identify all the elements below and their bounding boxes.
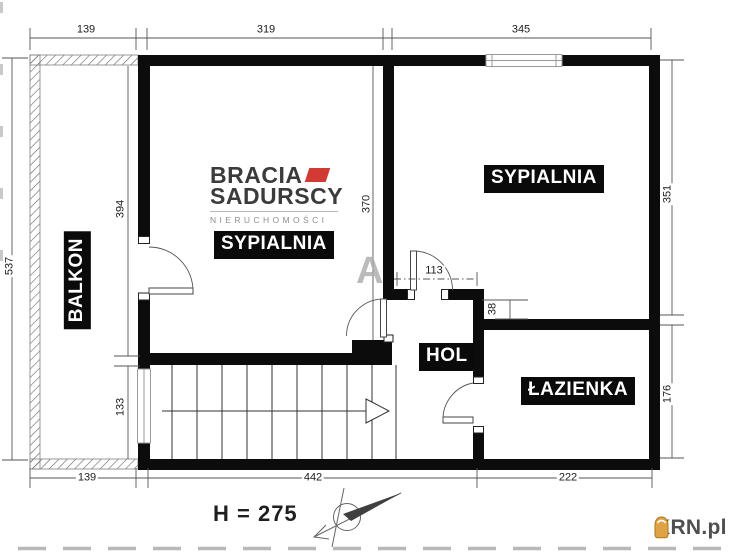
bedroom-window xyxy=(486,55,562,67)
stairs-direction-arrow xyxy=(366,399,389,423)
dim-bottom-bathroom: 222 xyxy=(557,473,579,484)
dim-top-balcony: 139 xyxy=(75,25,97,36)
dimension-lines xyxy=(2,28,684,488)
main-walls xyxy=(138,55,660,470)
dim-left-total: 537 xyxy=(5,255,16,277)
dim-right-bathroom: 176 xyxy=(663,383,674,405)
floorplan: A BALKON SYPIALNIA SYPIALNIA HOL ŁAZIENK… xyxy=(0,0,740,553)
dim-bedroom-depth: 370 xyxy=(362,193,373,215)
dim-wall-offset: 38 xyxy=(488,301,499,317)
dim-top-bedroom-right: 345 xyxy=(510,25,532,36)
agency-name-line2: SADURSCY xyxy=(210,186,338,207)
dim-right-bedroom: 351 xyxy=(663,183,674,205)
bathroom-door xyxy=(443,383,473,423)
agency-accent-mark xyxy=(305,168,331,182)
dim-left-stairs: 133 xyxy=(116,396,127,418)
agency-tagline: NIERUCHOMOŚCI xyxy=(210,211,338,225)
stairs-window xyxy=(138,369,151,443)
balcony-door xyxy=(149,247,193,294)
windows xyxy=(138,55,563,444)
agency-logo: BRACIA SADURSCY NIERUCHOMOŚCI xyxy=(210,165,338,225)
dim-bottom-main: 442 xyxy=(302,473,324,484)
dim-bottom-balcony: 139 xyxy=(76,473,98,484)
north-arrow xyxy=(314,488,401,547)
watermark-letter: A xyxy=(356,252,383,290)
room-label-balkon: BALKON xyxy=(64,231,91,329)
krn-icon xyxy=(653,516,670,539)
staircase xyxy=(162,365,396,459)
bedroom-left-door xyxy=(347,299,387,337)
dim-left-bedroom: 394 xyxy=(116,198,127,220)
room-label-sypialnia-right: SYPIALNIA xyxy=(484,165,604,193)
dim-hall-door: 113 xyxy=(423,266,445,277)
ceiling-height-note: H = 275 xyxy=(213,501,298,527)
room-label-lazienka: ŁAZIENKA xyxy=(521,377,635,405)
portal-logo: KRN.pl xyxy=(653,516,727,540)
room-label-hol: HOL xyxy=(419,343,475,371)
room-label-sypialnia-left: SYPIALNIA xyxy=(214,231,334,259)
dim-top-bedroom-left: 319 xyxy=(255,25,277,36)
